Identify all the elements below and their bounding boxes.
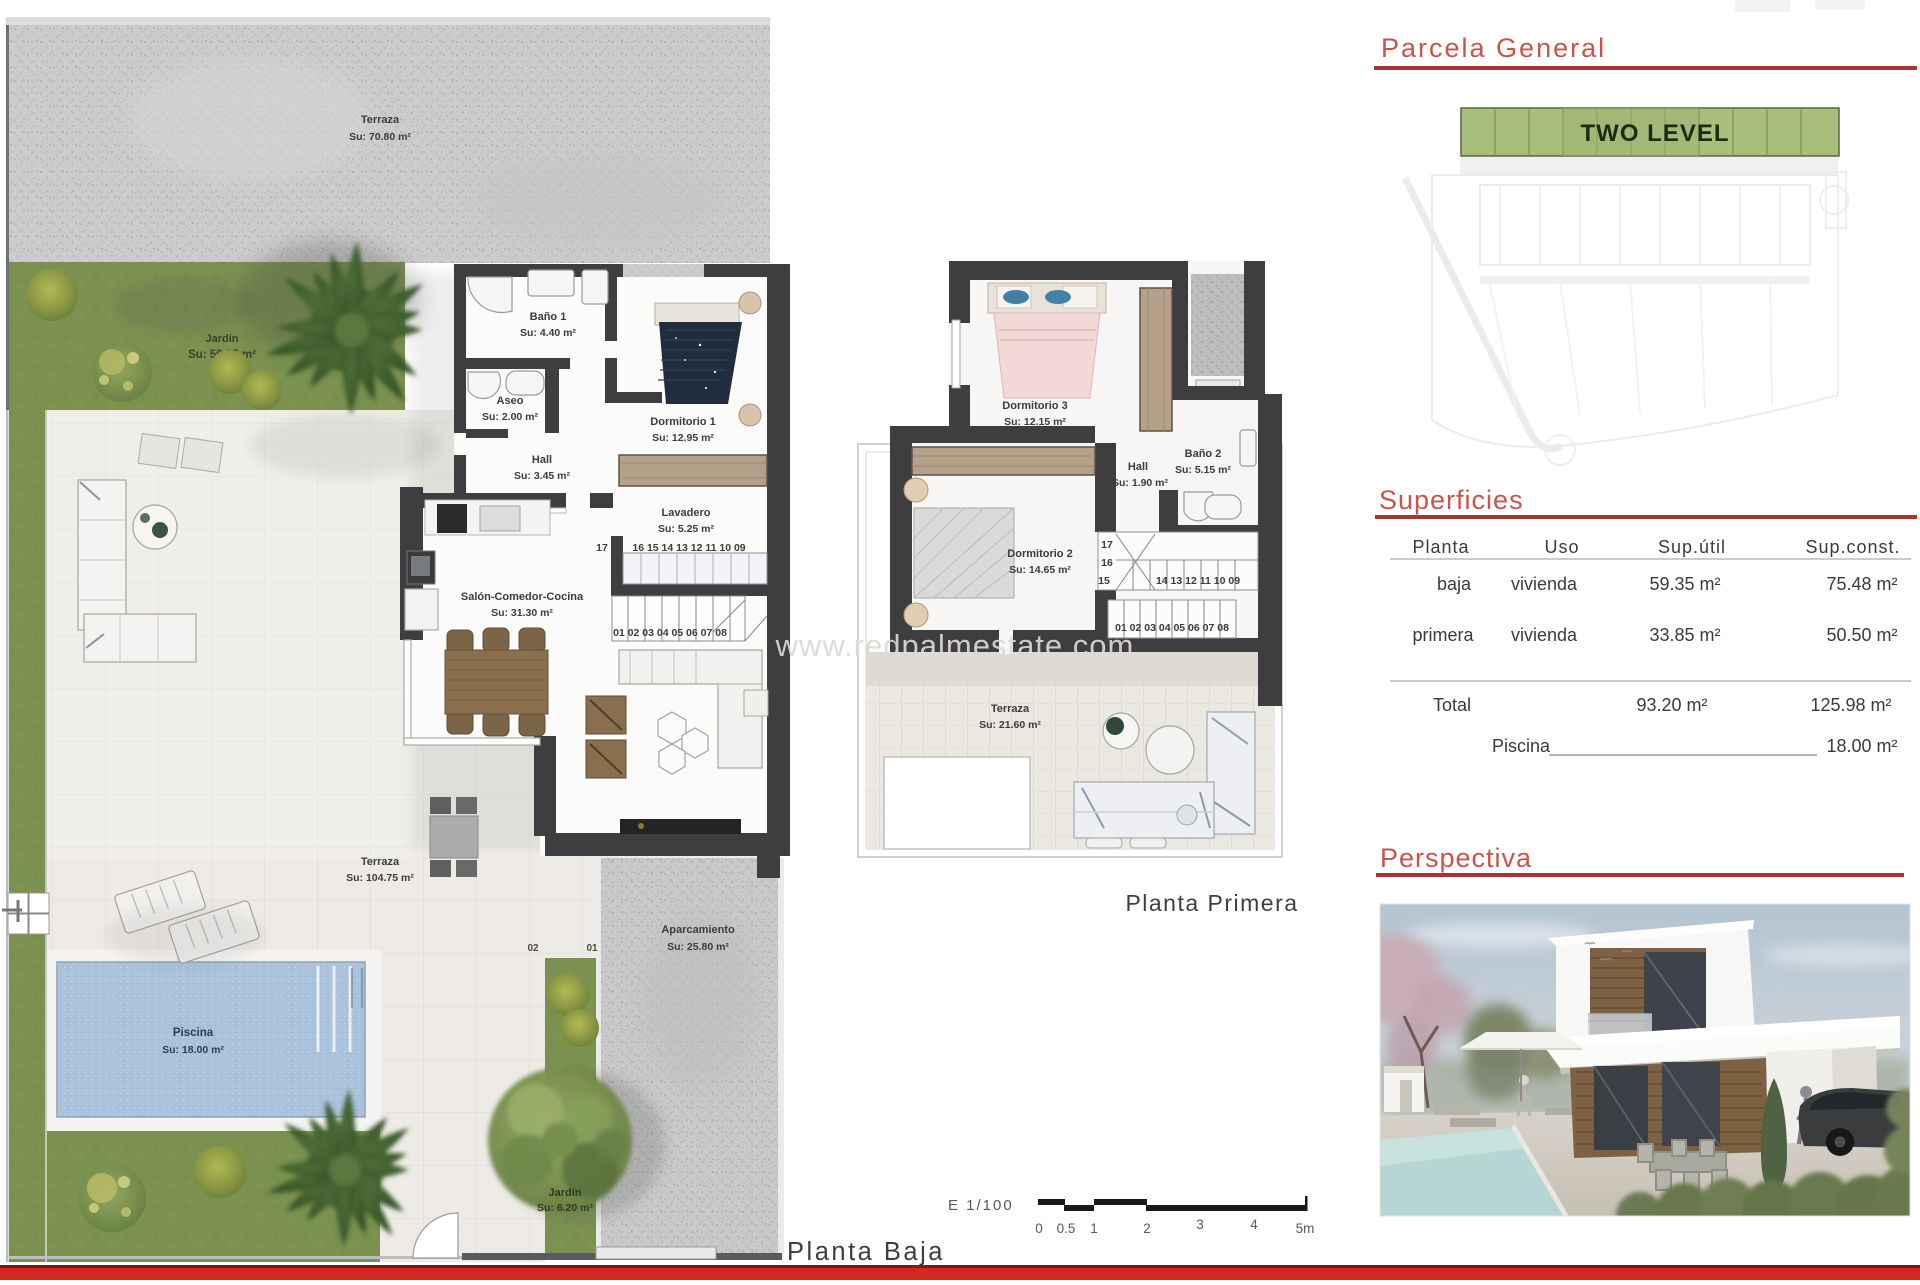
- svg-text:Perspectiva: Perspectiva: [1380, 843, 1532, 873]
- svg-text:Jardín: Jardín: [205, 333, 238, 345]
- svg-text:1: 1: [1090, 1221, 1098, 1236]
- svg-text:0.5: 0.5: [1057, 1221, 1076, 1236]
- svg-text:5m: 5m: [1296, 1221, 1315, 1236]
- svg-text:baja: baja: [1437, 574, 1472, 594]
- svg-text:Jardín: Jardín: [548, 1187, 581, 1199]
- svg-text:Su: 31.30 m²: Su: 31.30 m²: [491, 607, 553, 619]
- svg-text:Baño 1: Baño 1: [530, 311, 567, 323]
- svg-text:Su: 25.80 m²: Su: 25.80 m²: [667, 941, 729, 953]
- svg-text:E 1/100: E 1/100: [948, 1197, 1014, 1214]
- svg-text:02: 02: [527, 943, 539, 954]
- svg-text:125.98 m²: 125.98 m²: [1810, 695, 1891, 715]
- svg-text:vivienda: vivienda: [1511, 625, 1578, 645]
- svg-text:15: 15: [1098, 575, 1110, 587]
- svg-text:Uso: Uso: [1544, 537, 1579, 557]
- svg-text:Su: 1.90 m²: Su: 1.90 m²: [1112, 477, 1169, 489]
- svg-text:01 02 03 04 05 06 07 08: 01 02 03 04 05 06 07 08: [613, 627, 727, 639]
- svg-text:Dormitorio 2: Dormitorio 2: [1007, 548, 1072, 560]
- svg-text:0: 0: [1035, 1221, 1043, 1236]
- svg-text:17: 17: [1101, 539, 1113, 551]
- svg-text:16 15 14 13 12 11 10 09: 16 15 14 13 12 11 10 09: [632, 542, 745, 554]
- svg-text:Hall: Hall: [1128, 461, 1148, 473]
- svg-text:Su: 3.45 m²: Su: 3.45 m²: [514, 470, 571, 482]
- svg-text:14 13 12 11 10 09: 14 13 12 11 10 09: [1156, 575, 1240, 587]
- svg-text:Terraza: Terraza: [361, 114, 400, 126]
- svg-text:Total: Total: [1433, 695, 1471, 715]
- svg-text:Piscina: Piscina: [173, 1027, 214, 1039]
- svg-text:Aparcamiento: Aparcamiento: [661, 924, 735, 936]
- svg-text:primera: primera: [1412, 625, 1474, 645]
- svg-text:Superficies: Superficies: [1379, 485, 1524, 515]
- svg-text:4: 4: [1250, 1217, 1258, 1232]
- svg-text:Su: 2.00 m²: Su: 2.00 m²: [482, 411, 539, 423]
- svg-text:16: 16: [1101, 557, 1113, 569]
- svg-text:33.85 m²: 33.85 m²: [1649, 625, 1720, 645]
- svg-text:Planta Baja: Planta Baja: [787, 1238, 945, 1266]
- svg-text:01: 01: [586, 943, 598, 954]
- svg-text:Su: 4.40 m²: Su: 4.40 m²: [520, 327, 577, 339]
- svg-text:75.48 m²: 75.48 m²: [1826, 574, 1897, 594]
- svg-text:Su: 5.25 m²: Su: 5.25 m²: [658, 523, 715, 535]
- svg-text:Su: 18.00 m²: Su: 18.00 m²: [162, 1044, 224, 1056]
- svg-text:Piscina: Piscina: [1492, 736, 1551, 756]
- svg-text:Planta Primera: Planta Primera: [1125, 890, 1298, 916]
- svg-text:vivienda: vivienda: [1511, 574, 1578, 594]
- svg-text:Salón-Comedor-Cocina: Salón-Comedor-Cocina: [461, 591, 584, 603]
- svg-text:17: 17: [596, 542, 608, 554]
- svg-text:Terraza: Terraza: [991, 703, 1030, 715]
- svg-text:www.redpalmestate.com: www.redpalmestate.com: [775, 628, 1135, 663]
- svg-text:Terraza: Terraza: [361, 856, 400, 868]
- svg-text:Su: 12.95 m²: Su: 12.95 m²: [652, 432, 714, 444]
- svg-text:Parcela General: Parcela General: [1381, 33, 1606, 63]
- svg-text:Baño 2: Baño 2: [1185, 448, 1222, 460]
- svg-text:Dormitorio 1: Dormitorio 1: [650, 416, 715, 428]
- svg-text:Su: 12.15 m²: Su: 12.15 m²: [1004, 416, 1066, 428]
- svg-text:Sup.const.: Sup.const.: [1805, 537, 1900, 557]
- svg-text:Sup.útil: Sup.útil: [1658, 537, 1726, 557]
- svg-text:Dormitorio 3: Dormitorio 3: [1002, 400, 1067, 412]
- svg-text:18.00 m²: 18.00 m²: [1826, 736, 1897, 756]
- svg-text:59.35 m²: 59.35 m²: [1649, 574, 1720, 594]
- svg-text:Su: 6.20 m²: Su: 6.20 m²: [537, 1202, 594, 1214]
- svg-text:2: 2: [1143, 1221, 1151, 1236]
- svg-text:Su: 14.65 m²: Su: 14.65 m²: [1009, 564, 1071, 576]
- svg-text:93.20 m²: 93.20 m²: [1636, 695, 1707, 715]
- svg-text:Planta: Planta: [1412, 537, 1469, 557]
- svg-text:TWO LEVEL: TWO LEVEL: [1581, 120, 1730, 147]
- svg-text:Su: 104.75 m²: Su: 104.75 m²: [346, 872, 414, 884]
- svg-text:Su: 21.60 m²: Su: 21.60 m²: [979, 719, 1041, 731]
- svg-text:Su: 5.15 m²: Su: 5.15 m²: [1175, 464, 1232, 476]
- svg-text:Aseo: Aseo: [497, 395, 524, 407]
- svg-text:Lavadero: Lavadero: [662, 507, 711, 519]
- svg-text:3: 3: [1196, 1217, 1204, 1232]
- svg-text:50.50 m²: 50.50 m²: [1826, 625, 1897, 645]
- svg-text:Hall: Hall: [532, 454, 552, 466]
- svg-text:Su: 70.80 m²: Su: 70.80 m²: [349, 131, 411, 143]
